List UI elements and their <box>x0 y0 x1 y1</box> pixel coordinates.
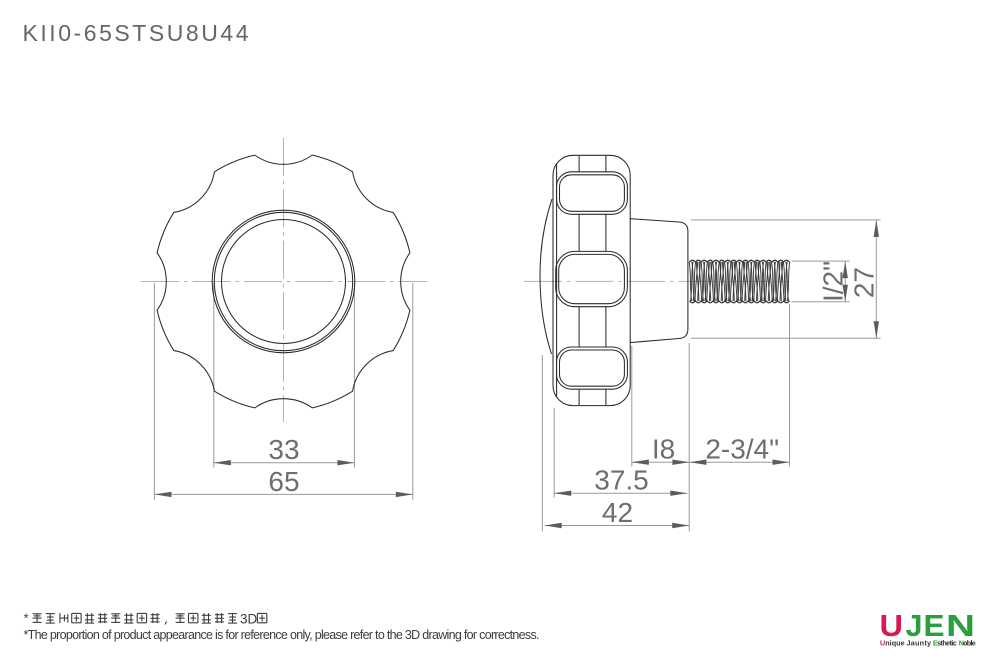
svg-text:I8: I8 <box>652 434 675 465</box>
svg-text:27: 27 <box>849 267 880 298</box>
svg-text:Noble: Noble <box>959 639 976 648</box>
svg-text:42: 42 <box>602 497 633 528</box>
svg-text:65: 65 <box>268 466 299 497</box>
svg-text:Esthetic: Esthetic <box>933 639 957 648</box>
svg-text:*: * <box>24 611 29 626</box>
svg-text:3D: 3D <box>240 612 258 627</box>
svg-text:Jaunty: Jaunty <box>907 639 932 648</box>
svg-text:2-3/4": 2-3/4" <box>705 434 779 465</box>
svg-text:37.5: 37.5 <box>594 465 649 496</box>
svg-text:I/2": I/2" <box>818 261 849 302</box>
svg-text:33: 33 <box>268 434 299 465</box>
svg-text:*The proportion of product app: *The proportion of product appearance is… <box>24 628 540 642</box>
svg-text:Unique: Unique <box>880 639 905 648</box>
